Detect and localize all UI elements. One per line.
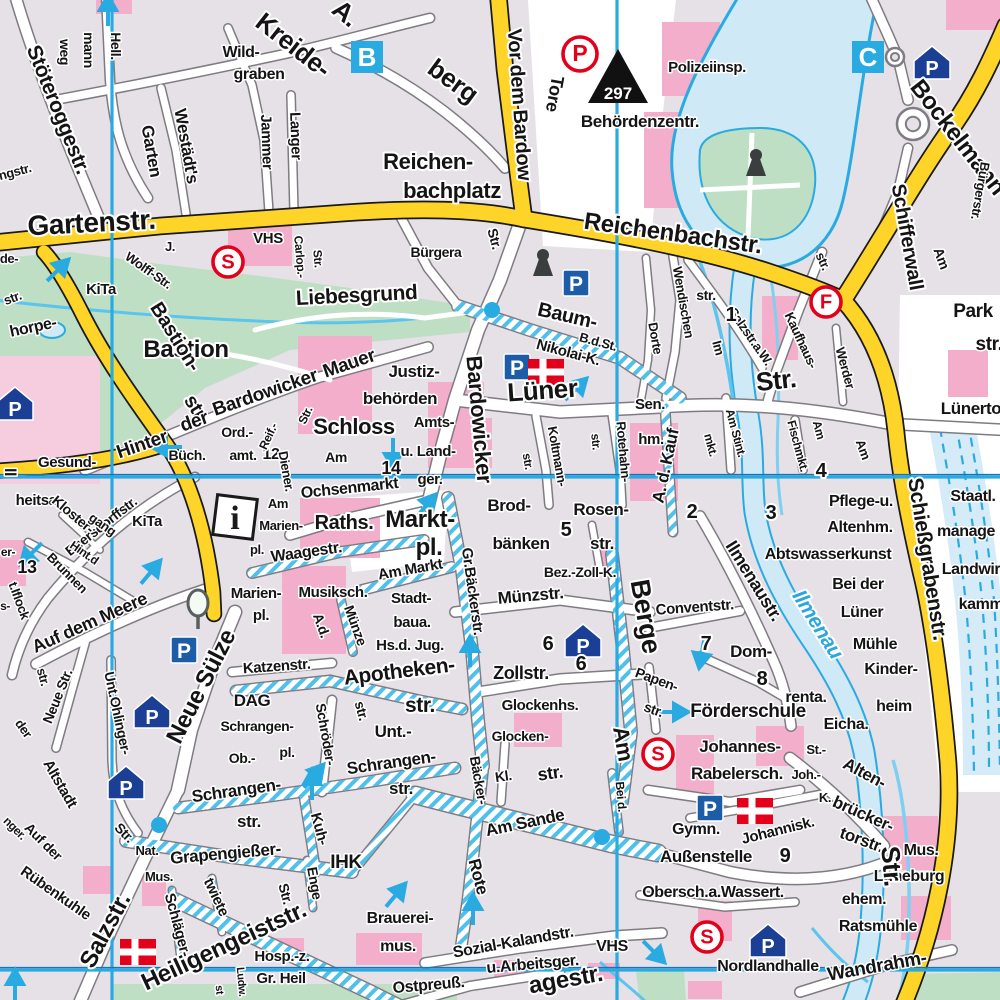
map-label: 9 [780, 845, 791, 867]
svg-text:B: B [358, 42, 377, 72]
map-label: Nat. [136, 843, 159, 858]
map-label: Bez.-Zoll-K. [544, 564, 616, 580]
church-cross-icon [120, 939, 156, 965]
map-label: str. [536, 761, 564, 784]
map-label: Altenhm. [827, 519, 892, 536]
map-label: bachplatz [403, 178, 501, 203]
svg-text:P: P [761, 936, 774, 958]
map-label: ehem. [842, 891, 886, 908]
map-label: Ord.- [221, 424, 253, 440]
map-label: s- [0, 599, 10, 613]
map-label: Rabelersch. [691, 764, 783, 783]
map-label: pl. [253, 607, 270, 624]
map-label: Kl. [494, 767, 513, 785]
map-label: Ob.- [229, 750, 256, 766]
map-label: str. [237, 812, 261, 831]
ring-icon: S [692, 922, 722, 952]
map-label: Behördenzentr. [581, 112, 699, 131]
map-label: 5 [561, 519, 572, 541]
map-label: KiTa [132, 513, 163, 530]
map-label: 1 [726, 304, 737, 326]
map-label: 8 [757, 668, 768, 690]
map-label: Justiz- [388, 362, 439, 381]
map-label: Lünerto [941, 399, 1000, 418]
letter-square-icon: C [852, 41, 884, 73]
map-label: Am [325, 449, 347, 465]
map-label: Marien- [231, 585, 282, 602]
map-label: pl. [279, 744, 294, 760]
svg-text:F: F [820, 291, 832, 313]
map-label: Büch. [169, 447, 206, 463]
map-label: st [213, 985, 226, 996]
map-label: baua. [393, 614, 430, 631]
map-label: Bei der [832, 576, 884, 593]
map-label: 13 [17, 557, 37, 577]
svg-text:S: S [700, 926, 714, 948]
map-label: renta. [785, 689, 826, 706]
map-label: Brauerei- [367, 910, 434, 927]
map-label: Amts- [414, 414, 455, 431]
map-label: Wild- [223, 44, 260, 61]
map-label: mus. [380, 938, 416, 955]
map-label: weg [57, 38, 73, 65]
map-label: St.- [806, 742, 825, 757]
ring-icon: P [563, 37, 597, 71]
map-label: Hosp.-z. [254, 948, 309, 965]
map-label: heim [876, 698, 912, 715]
map-label: Musiksch. [299, 584, 368, 601]
map-label: Schloss [313, 414, 395, 439]
map-label: str. [696, 287, 715, 303]
map-label: Bei d. [613, 781, 630, 812]
info-icon: i [213, 495, 258, 540]
svg-text:P: P [572, 40, 587, 66]
map-label: graben [234, 66, 285, 83]
dot-icon [151, 817, 167, 833]
map-label: ger. [417, 471, 442, 488]
map-label: Mus. [145, 869, 173, 884]
city-map[interactable]: BCPPPPPPPPPPSSSPFi297 Stöteroggestr.Hell… [0, 0, 1000, 1000]
map-label: Joh.- [791, 767, 820, 782]
map-label: J. [165, 239, 175, 254]
map-label: DAG [234, 691, 271, 710]
map-label: Glocken- [492, 728, 549, 744]
map-label: Brod- [487, 496, 530, 515]
map-label: Schrangen- [220, 718, 294, 734]
map-label: behörden [363, 389, 437, 408]
map-label: kamm [959, 596, 1000, 613]
parking-square-icon: P [563, 270, 589, 296]
map-label: mann [81, 32, 97, 68]
map-label: str. [588, 433, 603, 451]
ring-icon: F [811, 287, 841, 317]
parking-square-icon: P [171, 637, 197, 663]
map-label: 4 [816, 460, 828, 482]
svg-text:P: P [703, 798, 717, 821]
map-label: Eicha. [824, 716, 869, 733]
map-label: K. [819, 790, 831, 805]
map-label: str. [405, 694, 435, 717]
map-label: Glockenhs. [502, 697, 579, 714]
map-label: str. [520, 452, 537, 471]
map-label: Unt.- [375, 722, 412, 741]
map-label: Raths. [315, 512, 374, 534]
svg-text:P: P [569, 273, 583, 296]
map-label: Abtswasserkunst [765, 546, 893, 563]
parking-square-icon: P [697, 795, 723, 821]
map-label: de- [0, 251, 18, 266]
map-label: VHS [596, 938, 628, 955]
map-label: 6 [543, 633, 554, 655]
ring-icon: S [213, 247, 243, 277]
map-label: Landwir [942, 561, 1000, 578]
map-label: Jammer [257, 114, 276, 170]
map-label: er- [1, 545, 16, 559]
ring-icon: S [643, 739, 673, 769]
map-label: Polizeiinsp. [668, 59, 746, 76]
map-label: Bürgera [411, 244, 462, 260]
map-label: Str. [310, 249, 325, 268]
map-label: Obersch.a.Wassert. [642, 884, 784, 901]
map-label: KiTa [86, 281, 117, 298]
map-label: u. Land- [400, 443, 456, 460]
svg-text:297: 297 [604, 84, 632, 103]
map-label: Gr. Heil [256, 970, 306, 987]
map-label: Kinder- [864, 661, 917, 678]
map-label: Nordlandhalle [717, 958, 819, 975]
map-label: Hs.d. Jug. [376, 637, 444, 654]
dot-icon [594, 829, 610, 845]
svg-text:P: P [145, 707, 158, 729]
letter-square-icon: B [351, 41, 383, 73]
map-label: Stadt- [391, 590, 432, 607]
svg-text:i: i [230, 500, 239, 537]
map-label: 2 [687, 501, 698, 523]
svg-text:P: P [177, 640, 191, 663]
map-label: pl. [250, 542, 264, 557]
svg-text:S: S [221, 251, 235, 273]
map-label: Johannes- [699, 737, 780, 756]
map-label: IHK [330, 852, 362, 873]
map-label: Gesund- [38, 454, 96, 471]
map-label: Außenstelle [660, 847, 752, 866]
map-label: VHS [253, 230, 283, 247]
map-label: str. [976, 334, 1000, 355]
map-label: Lüner [506, 373, 578, 408]
map-label: 6 [576, 653, 587, 675]
map-label: 3 [766, 502, 777, 524]
dot-icon [484, 302, 500, 318]
map-label: str. [590, 534, 614, 553]
map-label: Langer [286, 112, 305, 161]
church-cross-icon [737, 798, 773, 824]
map-label: Sen. [635, 396, 665, 413]
map-canvas: BCPPPPPPPPPPSSSPFi297 Stöteroggestr.Hell… [0, 0, 1000, 1000]
roundabout-icon [886, 48, 904, 66]
map-label: Park [953, 301, 993, 322]
svg-text:P: P [8, 399, 21, 421]
map-label: Ratsmühle [839, 918, 918, 935]
map-label: Lüner [841, 604, 884, 621]
map-label: Am [268, 496, 288, 511]
map-label: Rosen- [573, 500, 628, 519]
map-label: Hell. [108, 32, 124, 60]
map-label: manage [937, 523, 996, 540]
map-label: ll [1, 468, 18, 476]
map-label: amt. [229, 447, 256, 463]
map-label: 7 [701, 633, 712, 655]
map-label: Mühle [853, 636, 898, 653]
map-label: Marien- [259, 518, 303, 533]
map-label: Zollstr. [493, 663, 549, 683]
map-label: Staatl. [950, 488, 995, 505]
map-label: str. [389, 779, 413, 798]
map-label: Markt- [385, 506, 455, 533]
map-label: Pflege-u. [829, 493, 893, 510]
map-label: Gymn. [672, 821, 720, 838]
map-label: Str. [754, 363, 797, 397]
map-label: Reichen- [383, 149, 473, 174]
map-label: Str. [875, 845, 908, 888]
svg-text:S: S [651, 743, 665, 765]
map-label: Mus. [904, 842, 939, 859]
svg-text:C: C [859, 42, 878, 72]
map-label: Dom- [730, 642, 772, 661]
map-label: bänken [492, 534, 549, 553]
svg-text:P: P [119, 778, 132, 800]
